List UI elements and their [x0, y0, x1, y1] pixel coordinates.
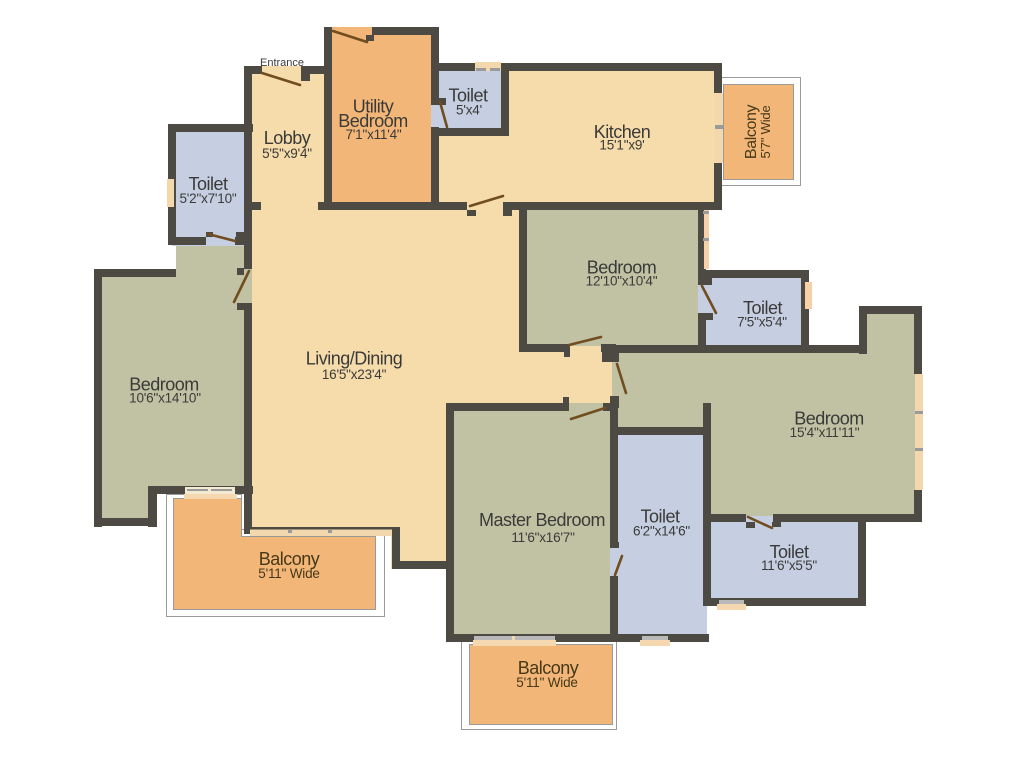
- svg-text:5'5"x9'4": 5'5"x9'4": [262, 146, 312, 161]
- svg-text:10'6"x14'10": 10'6"x14'10": [129, 391, 201, 406]
- svg-text:Living/Dining: Living/Dining: [306, 349, 403, 369]
- svg-text:5'11" Wide: 5'11" Wide: [258, 566, 319, 581]
- svg-text:Master Bedroom: Master Bedroom: [479, 510, 605, 530]
- svg-text:6'2"x14'6": 6'2"x14'6": [633, 524, 690, 539]
- svg-text:Lobby: Lobby: [264, 128, 311, 148]
- svg-text:7'5"x5'4": 7'5"x5'4": [737, 315, 787, 330]
- svg-text:7'1"x11'4": 7'1"x11'4": [345, 127, 401, 142]
- svg-text:Entrance: Entrance: [260, 57, 304, 69]
- svg-text:15'4"x11'11": 15'4"x11'11": [790, 425, 860, 440]
- svg-text:16'5"x23'4": 16'5"x23'4": [322, 367, 387, 382]
- svg-text:12'10"x10'4": 12'10"x10'4": [586, 274, 658, 289]
- svg-text:5'2"x7'10": 5'2"x7'10": [179, 191, 236, 206]
- svg-text:15'1"x9': 15'1"x9': [599, 138, 644, 153]
- svg-text:5'x4': 5'x4': [456, 103, 482, 118]
- svg-text:11'6"x16'7": 11'6"x16'7": [511, 530, 575, 545]
- svg-text:11'6"x5'5": 11'6"x5'5": [761, 558, 817, 573]
- svg-text:5'11" Wide: 5'11" Wide: [516, 675, 577, 690]
- svg-text:5'7" Wide: 5'7" Wide: [758, 106, 773, 159]
